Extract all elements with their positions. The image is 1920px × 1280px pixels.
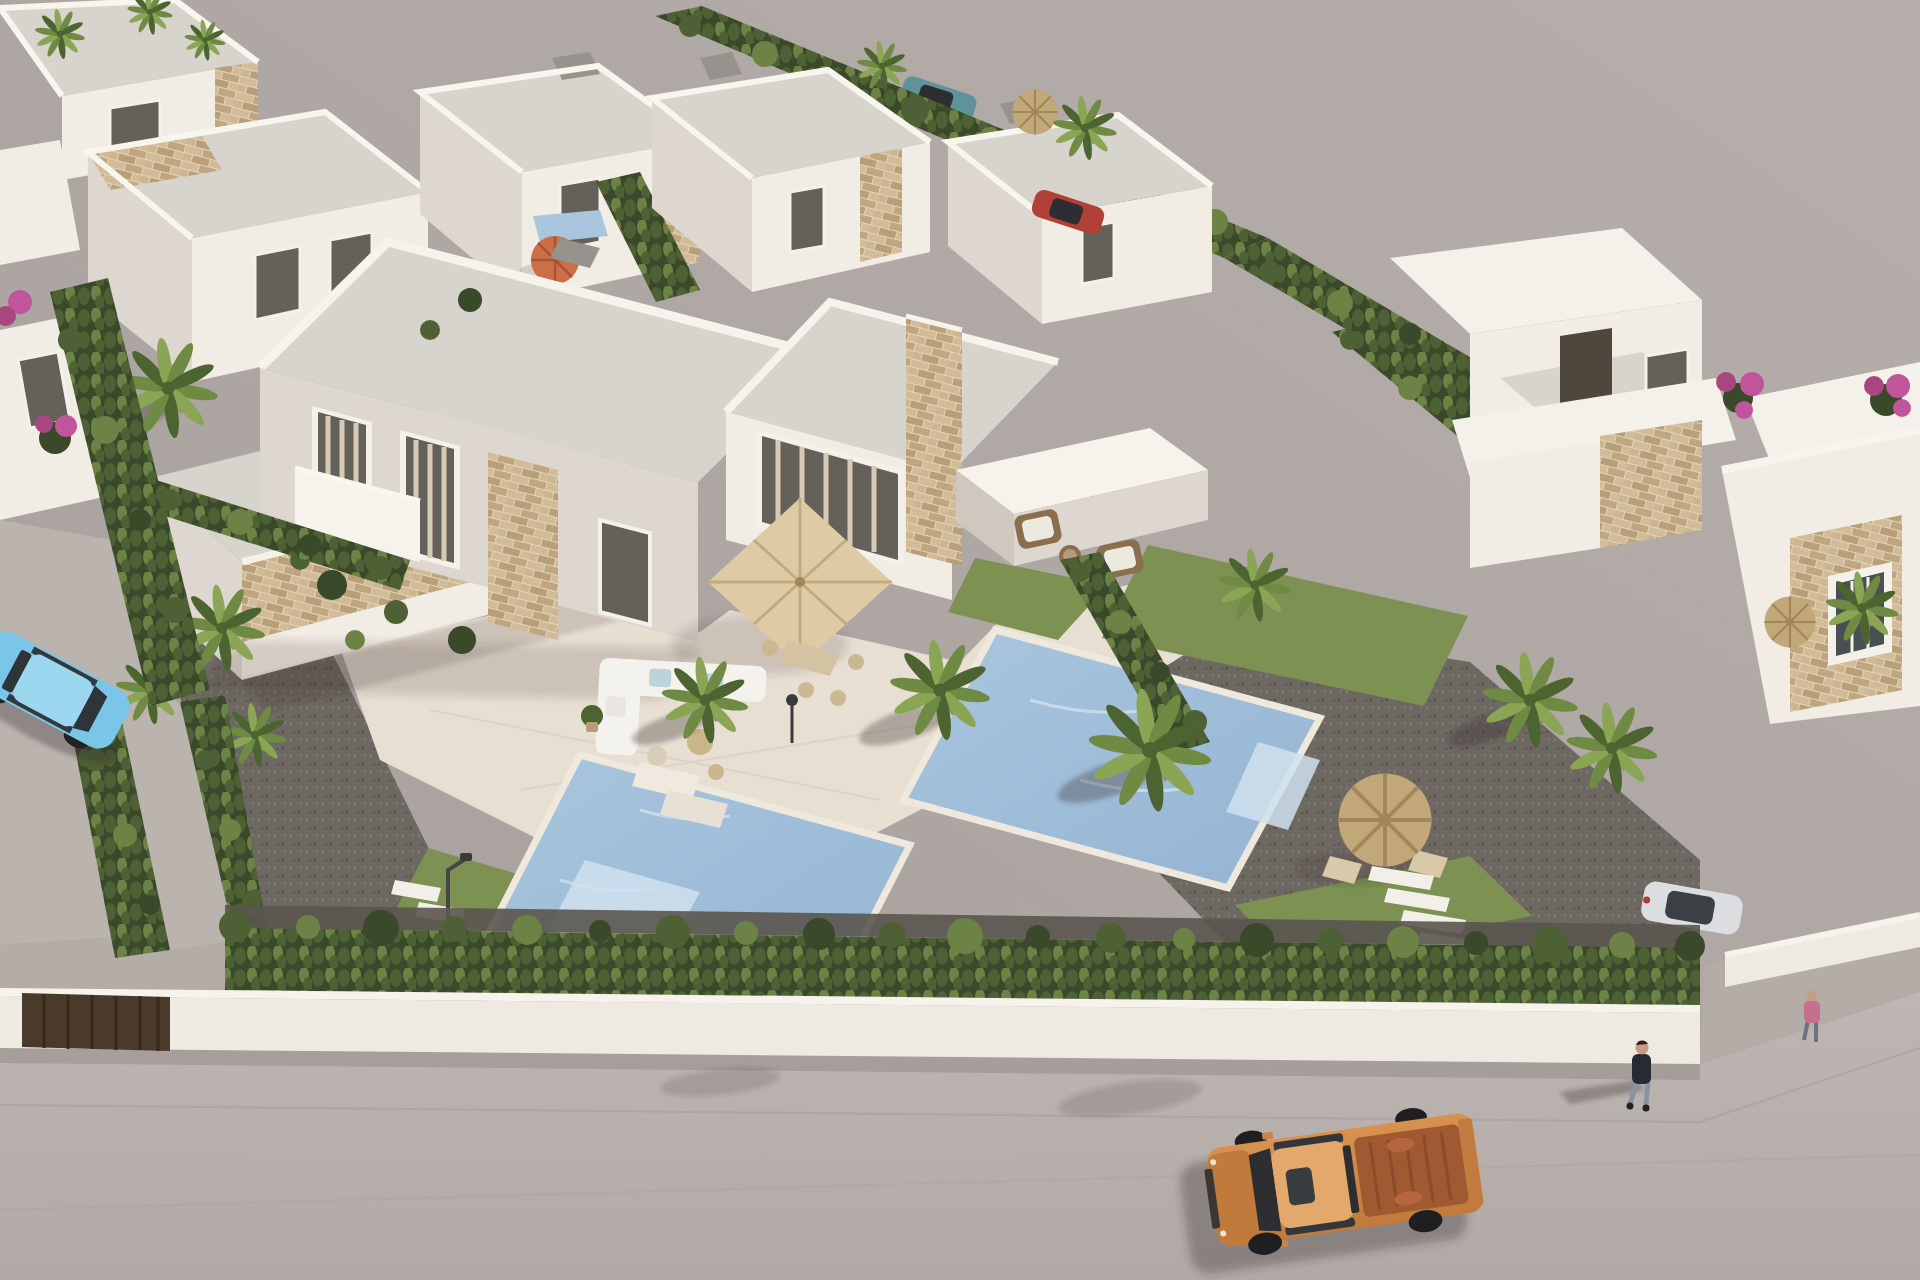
small-palapa [1765, 597, 1816, 648]
small-palapa [1013, 90, 1058, 135]
pedestrian-head [1807, 991, 1817, 1001]
pedestrian-torso [1632, 1054, 1651, 1084]
entrance-gate [22, 993, 170, 1051]
aerial-villa-render [0, 0, 1920, 1280]
render-canvas [0, 0, 1920, 1280]
sunroof [1285, 1167, 1316, 1206]
ground-door [600, 520, 650, 625]
stone-chimney [906, 316, 962, 566]
pedestrian-torso [1804, 1001, 1820, 1023]
stone-facade [1600, 420, 1702, 548]
pouf [647, 746, 667, 766]
stone-column [488, 452, 558, 640]
